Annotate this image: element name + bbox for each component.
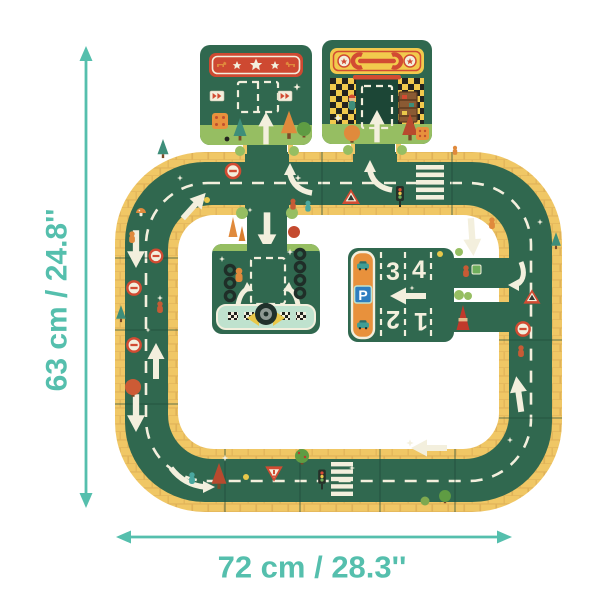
grass-mound — [235, 146, 245, 156]
bay-number-3: 3 — [386, 258, 400, 286]
garage-lintel — [353, 75, 401, 80]
piece-star-parking — [200, 45, 312, 145]
duck-character-icon — [189, 472, 195, 484]
bush-icon — [421, 497, 430, 506]
round-sign-icon — [516, 322, 529, 335]
dice-dot — [424, 135, 426, 137]
animal-character-icon — [157, 301, 163, 313]
flower-icon — [437, 251, 443, 257]
animal-character-icon — [518, 345, 524, 357]
fox-character-icon — [129, 231, 135, 243]
round-sign-icon — [127, 338, 140, 351]
bay-number-2: 2 — [386, 305, 400, 333]
grass-mound — [454, 290, 464, 300]
width-arrowhead-left — [116, 531, 131, 544]
dice-dot — [419, 135, 421, 137]
tire-hub-center — [264, 312, 269, 317]
grass-mound — [289, 146, 299, 156]
flower-icon — [243, 474, 249, 480]
dice-dot — [215, 123, 218, 126]
flag-marker-icon — [278, 91, 292, 101]
piece-garage — [322, 40, 432, 144]
width-dimension: 72 cm / 28.3'' — [116, 531, 512, 585]
grass-mound — [236, 207, 248, 219]
grass-mound — [464, 292, 472, 300]
mechanic-character-icon — [235, 268, 242, 282]
dice-dot — [222, 116, 225, 119]
apple-dot — [298, 452, 300, 454]
bird-icon — [225, 137, 230, 142]
width-arrowhead-right — [497, 531, 512, 544]
animal-character-icon — [305, 201, 310, 212]
round-sign-icon — [150, 250, 163, 263]
bay-number-4: 4 — [412, 256, 426, 284]
dice-dot — [215, 116, 218, 119]
grass-mound — [397, 145, 407, 155]
animal-character-icon — [489, 217, 495, 229]
height-dimension-label: 63 cm / 24.8'' — [41, 209, 74, 392]
no-entry-sign-icon — [226, 164, 240, 178]
height-arrowhead-top — [80, 46, 93, 61]
dice-dot — [222, 123, 225, 126]
product-image: 63 cm / 24.8'' 72 cm / 28.3'' — [0, 0, 600, 600]
road-puzzle-diagram: 63 cm / 24.8'' 72 cm / 28.3'' — [0, 0, 600, 600]
parking-sign-letter: P — [358, 287, 367, 303]
flower-icon — [204, 197, 210, 203]
width-dimension-label: 72 cm / 28.3'' — [218, 550, 407, 585]
mechanic-character-icon — [349, 95, 356, 110]
grass-mound — [343, 145, 353, 155]
piece-pit-stop — [212, 244, 320, 334]
bay-number-1: 1 — [414, 307, 428, 335]
height-arrowhead-bottom — [80, 493, 93, 508]
dice-dot — [424, 130, 426, 132]
flag-marker-icon — [210, 91, 224, 101]
grass-mound — [455, 248, 463, 256]
dice-icon — [212, 113, 228, 129]
pine-tree-icon — [157, 139, 168, 158]
attendant-character-icon — [463, 265, 469, 277]
animal-character-icon — [290, 199, 295, 210]
round-sign-icon — [127, 281, 140, 294]
bird-character-icon — [453, 146, 457, 155]
apple-dot — [304, 456, 306, 458]
dice-icon — [416, 127, 429, 140]
checkered-flag-icon — [228, 312, 238, 320]
parking-stub-road — [454, 258, 510, 288]
checkered-flag-icon — [296, 312, 306, 320]
tool-shelf-icon — [399, 92, 417, 122]
dice-dot — [419, 130, 421, 132]
height-dimension: 63 cm / 24.8'' — [41, 46, 93, 508]
red-ball-icon — [288, 226, 300, 238]
small-sign-icon — [472, 265, 481, 274]
